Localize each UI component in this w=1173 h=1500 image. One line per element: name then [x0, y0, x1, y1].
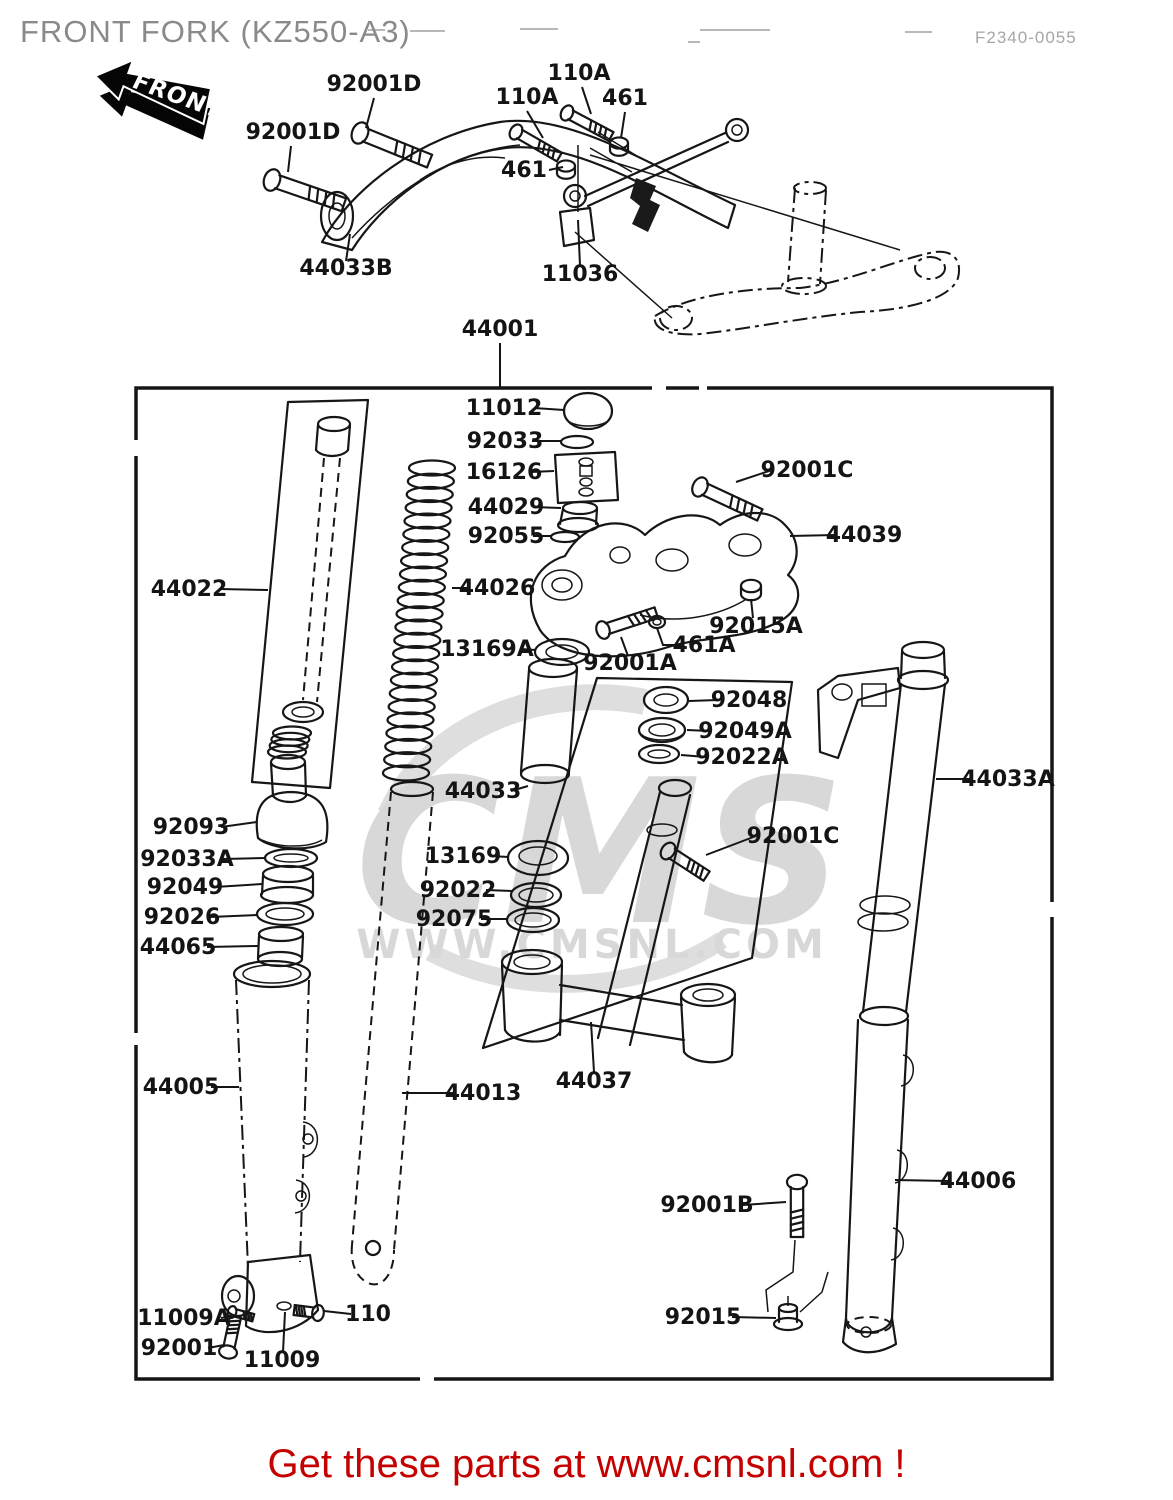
- part-label-13169A: 13169A: [440, 637, 534, 662]
- lower-triple-clamp-phantom: [655, 182, 959, 334]
- part-label-92001C: 92001C: [761, 458, 854, 483]
- part-label-44033A: 44033A: [961, 767, 1055, 792]
- leader-11036: [578, 220, 580, 266]
- part-label-92075: 92075: [416, 907, 493, 932]
- fork-brace-44033b: [321, 121, 735, 250]
- top-assembly: [321, 119, 959, 334]
- part-label-16126: 16126: [466, 460, 543, 485]
- leader-461: [621, 112, 625, 138]
- washer-92033: [561, 436, 593, 448]
- bolt-92001d: [349, 120, 434, 171]
- leader-110A: [582, 87, 591, 114]
- part-label-92033A: 92033A: [140, 847, 234, 872]
- part-label-11036: 11036: [542, 262, 619, 287]
- part-label-44022: 44022: [151, 577, 228, 602]
- part-label-11012: 11012: [466, 396, 543, 421]
- part-label-110A: 110A: [548, 61, 611, 86]
- part-number-labels: 92001D92001D110A110A46146144033B11036440…: [137, 61, 1055, 1373]
- part-label-92055: 92055: [468, 524, 545, 549]
- parts-fiche-page: CMS WWW.CMSNL.COM FRONT: [0, 0, 1173, 1500]
- air-valve-16126: [555, 452, 618, 503]
- part-label-11009A: 11009A: [137, 1306, 231, 1331]
- part-label-44001: 44001: [462, 317, 539, 342]
- leader-92001D: [366, 98, 374, 128]
- leader-11009: [283, 1312, 285, 1352]
- part-label-44033: 44033: [445, 779, 522, 804]
- nut-461: [610, 137, 628, 155]
- footer-banner: Get these parts at www.cmsnl.com !: [0, 1442, 1173, 1487]
- part-label-92093: 92093: [153, 815, 230, 840]
- dust-cap-92093: [257, 792, 328, 848]
- bushing-92049: [261, 866, 313, 903]
- bolt-92001d: [261, 167, 348, 215]
- leader-92001D: [288, 146, 291, 172]
- part-label-92049: 92049: [147, 875, 224, 900]
- part-label-92015: 92015: [665, 1305, 742, 1330]
- leader-44037: [591, 1022, 594, 1072]
- part-label-461: 461: [501, 158, 547, 183]
- crossbar-11036: [560, 119, 748, 246]
- part-label-92001C: 92001C: [747, 824, 840, 849]
- flanged-nut-92015: [774, 1296, 802, 1330]
- part-label-92026: 92026: [144, 905, 221, 930]
- outer-tube-44005: [222, 961, 318, 1332]
- page-title: FRONT FORK (KZ550-A3): [20, 14, 411, 50]
- part-label-110A: 110A: [496, 85, 559, 110]
- part-label-44029: 44029: [468, 495, 545, 520]
- part-label-92001A: 92001A: [583, 651, 677, 676]
- part-label-461: 461: [602, 86, 648, 111]
- part-label-92033: 92033: [467, 429, 544, 454]
- part-label-92015A: 92015A: [709, 614, 803, 639]
- part-label-92049A: 92049A: [698, 719, 792, 744]
- front-direction-badge: FRONT: [85, 50, 228, 149]
- part-label-44039: 44039: [826, 523, 903, 548]
- bearing-ring-92048: [644, 687, 688, 713]
- nut-461: [557, 160, 575, 178]
- part-label-11009: 11009: [244, 1348, 321, 1373]
- ring-92026: [257, 903, 313, 925]
- part-label-92048: 92048: [711, 688, 788, 713]
- part-label-92001D: 92001D: [246, 120, 341, 145]
- fiche-code: F2340-0055: [975, 28, 1077, 48]
- part-label-44026: 44026: [459, 576, 536, 601]
- bolt-92001b: [787, 1175, 807, 1237]
- parts-diagram: CMS WWW.CMSNL.COM FRONT: [0, 0, 1173, 1500]
- spring-seat-44029: [558, 502, 598, 532]
- damper-kit-44022: [252, 400, 368, 802]
- part-label-13169: 13169: [425, 844, 502, 869]
- nut-92015a: [741, 580, 761, 600]
- part-label-92022: 92022: [420, 878, 497, 903]
- top-cap-11012: [564, 393, 612, 429]
- part-label-44013: 44013: [445, 1081, 522, 1106]
- fender-bolt-bracket: [766, 1240, 828, 1330]
- part-label-44037: 44037: [556, 1069, 633, 1094]
- part-label-92001: 92001: [141, 1336, 218, 1361]
- part-label-110: 110: [345, 1302, 391, 1327]
- washer-13169a: [535, 639, 589, 665]
- part-label-92022A: 92022A: [695, 745, 789, 770]
- part-label-44065: 44065: [140, 935, 217, 960]
- scan-marks: [368, 29, 932, 42]
- part-label-44005: 44005: [143, 1075, 220, 1100]
- part-label-92001D: 92001D: [327, 72, 422, 97]
- part-label-44033B: 44033B: [299, 256, 392, 281]
- part-label-92001B: 92001B: [660, 1193, 753, 1218]
- rebound-spring: [268, 727, 311, 759]
- part-label-44006: 44006: [940, 1169, 1017, 1194]
- ring-92033a: [265, 849, 317, 867]
